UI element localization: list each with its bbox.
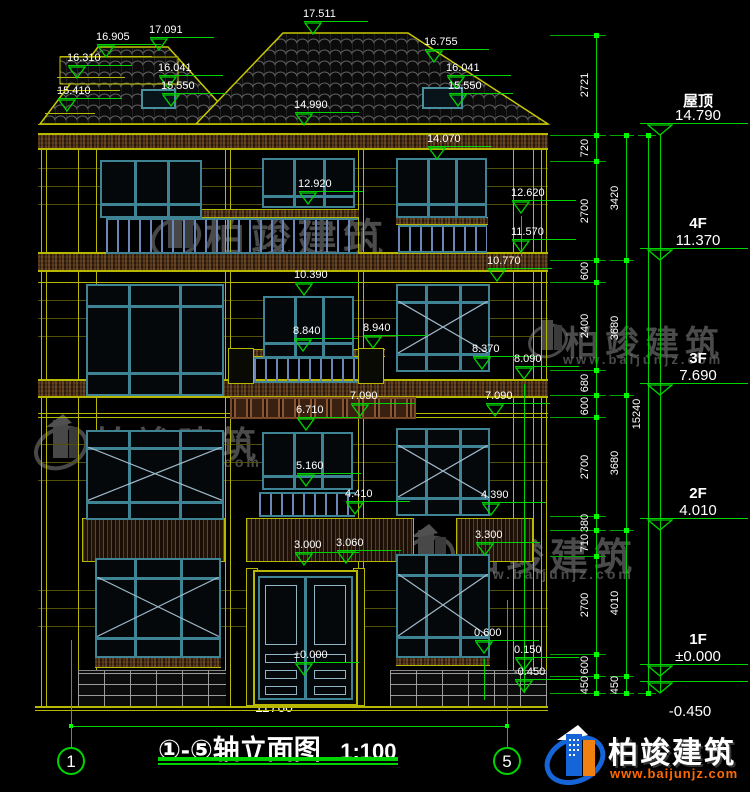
elev-label: 16.310 xyxy=(67,52,139,64)
axis-leader xyxy=(71,726,72,747)
elev-label: 15.550 xyxy=(161,80,233,92)
wall-line xyxy=(78,150,79,706)
elev-triangle-icon xyxy=(304,22,322,35)
wall-line xyxy=(38,271,548,272)
dim-node-dot xyxy=(624,691,629,696)
dim-node-dot xyxy=(594,415,599,420)
elev-label: 12.620 xyxy=(511,187,583,199)
dim-node-dot xyxy=(594,280,599,285)
floor-name: 屋顶 xyxy=(648,90,748,105)
elev-triangle-icon xyxy=(475,641,493,654)
elev-triangle-icon xyxy=(425,50,443,63)
entrance-door xyxy=(253,570,358,706)
window-mullion xyxy=(179,286,182,394)
elev-label: 4.410 xyxy=(345,488,417,500)
dim-node-dot xyxy=(624,393,629,398)
elev-triangle-icon xyxy=(150,38,168,51)
floor-elevation: 14.790 xyxy=(648,107,748,122)
dim-node-dot xyxy=(624,133,629,138)
window-mullion xyxy=(88,305,222,308)
elev-label: 14.990 xyxy=(294,99,366,111)
elev-label: 3.060 xyxy=(336,537,408,549)
brick-base xyxy=(78,670,226,706)
elev-triangle-icon xyxy=(515,367,533,380)
elev-label: 10.770 xyxy=(487,255,559,267)
elev-label: 7.090 xyxy=(350,390,422,402)
wall-line xyxy=(41,150,42,706)
elev-triangle-icon xyxy=(337,551,355,564)
window-mullion xyxy=(167,162,170,216)
floor-name: 1F xyxy=(648,631,748,646)
window-mullion xyxy=(398,203,485,206)
floor-elevation: ±0.000 xyxy=(648,648,748,663)
wall-line xyxy=(38,124,548,125)
axis-bubble: 1 xyxy=(57,747,85,775)
elev-triangle-icon xyxy=(488,269,506,282)
dim-node-dot xyxy=(624,258,629,263)
elev-triangle-icon xyxy=(364,336,382,349)
dim-tick xyxy=(610,260,634,261)
dim-node-dot xyxy=(594,159,599,164)
dim-node-dot xyxy=(594,258,599,263)
elev-label: 8.090 xyxy=(514,353,586,365)
dim-line xyxy=(158,757,398,761)
elev-label: 15.410 xyxy=(57,85,129,97)
elev-triangle-icon xyxy=(68,66,86,79)
dim-node-dot xyxy=(594,652,599,657)
dim-node-dot xyxy=(594,691,599,696)
floor-name: 4F xyxy=(648,215,748,230)
dim-value: 4010 xyxy=(609,568,621,638)
dim-line xyxy=(484,659,485,700)
door-panel xyxy=(265,585,297,644)
axis-leader xyxy=(507,726,508,747)
elev-label: 10.390 xyxy=(294,269,366,281)
door-panel xyxy=(265,654,297,663)
floor-triangle-icon xyxy=(647,123,673,135)
dim-node-dot xyxy=(594,393,599,398)
elev-label: 17.511 xyxy=(303,8,375,20)
dim-node-dot xyxy=(594,514,599,519)
dim-value: 450 xyxy=(579,650,591,720)
dim-node-dot xyxy=(624,528,629,533)
dim-tick xyxy=(610,135,634,136)
elev-triangle-icon xyxy=(297,474,315,487)
elev-triangle-icon xyxy=(482,503,500,516)
balcony-railing xyxy=(259,492,355,517)
dim-value: 450 xyxy=(609,650,621,720)
company-logo-icon xyxy=(542,722,608,788)
elev-triangle-icon xyxy=(476,543,494,556)
casement-x-mark xyxy=(88,447,222,500)
cad-canvas: 柏竣建筑 www.baijunjz.com 柏竣建筑 www.baijunjz.… xyxy=(0,0,750,792)
elev-label: 8.840 xyxy=(293,325,365,337)
floor-triangle-icon xyxy=(647,383,673,395)
dim-line xyxy=(158,763,398,765)
door-panel xyxy=(314,686,346,695)
window-mullion xyxy=(102,203,200,206)
floor-elevation: 11.370 xyxy=(648,232,748,247)
dim-node-dot xyxy=(594,674,599,679)
elev-triangle-icon xyxy=(294,339,312,352)
window-mullion xyxy=(97,637,219,640)
floor-triangle-icon xyxy=(647,681,673,693)
elev-label: 0.600 xyxy=(474,627,546,639)
dim-value: 15240 xyxy=(631,379,643,449)
elev-triangle-icon xyxy=(295,663,313,676)
elev-triangle-icon xyxy=(512,240,530,253)
window-mullion xyxy=(88,501,222,504)
window-mullion xyxy=(128,286,131,394)
elev-triangle-icon xyxy=(486,404,504,417)
wall-line xyxy=(45,113,95,114)
window-mullion xyxy=(455,160,458,216)
elev-triangle-icon xyxy=(428,147,446,160)
door-panel xyxy=(265,670,297,679)
spandrel-panel xyxy=(82,518,225,562)
balcony-railing xyxy=(106,218,358,254)
elev-triangle-icon xyxy=(58,99,76,112)
drawing-title: ①-⑤轴立面图 1:100 xyxy=(158,728,397,767)
elev-triangle-icon xyxy=(162,94,180,107)
window xyxy=(396,158,487,218)
door-panel xyxy=(314,670,346,679)
window-mullion xyxy=(293,160,296,206)
window xyxy=(86,430,224,520)
dim-value: 2721 xyxy=(579,50,591,120)
floor-triangle-icon xyxy=(647,664,673,676)
company-logo-url: www.baijunjz.com xyxy=(610,766,738,781)
elev-label: 14.070 xyxy=(427,133,499,145)
window xyxy=(86,284,224,396)
floor-elevation: 4.010 xyxy=(648,502,748,517)
dim-node-dot xyxy=(594,554,599,559)
window xyxy=(396,428,490,516)
elev-label: 16.041 xyxy=(158,62,230,74)
elev-triangle-icon xyxy=(295,113,313,126)
window xyxy=(95,558,221,658)
elev-label: 11.570 xyxy=(511,226,583,238)
wall-line xyxy=(38,149,548,150)
dim-node-dot xyxy=(594,368,599,373)
dim-value: 2700 xyxy=(579,176,591,246)
pier-post xyxy=(228,348,254,384)
dim-value: 3420 xyxy=(609,163,621,233)
door-panel xyxy=(265,686,297,695)
floor-triangle-icon xyxy=(647,518,673,530)
axis-bubble: 5 xyxy=(493,747,521,775)
door-panel xyxy=(314,585,346,644)
casement-x-mark xyxy=(97,577,219,637)
elev-triangle-icon xyxy=(297,418,315,431)
elev-label: 12.920 xyxy=(298,178,370,190)
floor-elevation: -0.450 xyxy=(640,703,740,718)
elev-triangle-icon xyxy=(295,553,313,566)
window-mullion xyxy=(88,372,222,375)
elev-triangle-icon xyxy=(515,680,533,693)
wall-line xyxy=(35,710,548,711)
pier-post xyxy=(358,348,384,384)
elev-triangle-icon xyxy=(473,357,491,370)
elev-label: 17.091 xyxy=(149,24,221,36)
wall-line xyxy=(35,706,548,708)
elev-label: 16.041 xyxy=(446,62,518,74)
dim-node-dot xyxy=(594,133,599,138)
elev-label: 8.940 xyxy=(363,322,435,334)
elev-triangle-icon xyxy=(299,192,317,205)
wall-line xyxy=(46,150,47,706)
elev-triangle-icon xyxy=(449,94,467,107)
elev-triangle-icon xyxy=(512,201,530,214)
floor-elevation: 7.690 xyxy=(648,367,748,382)
window-mullion xyxy=(427,160,430,216)
dim-node-dot xyxy=(624,674,629,679)
floor-band xyxy=(38,253,548,271)
dim-value: 600 xyxy=(579,371,591,441)
elev-triangle-icon xyxy=(346,502,364,515)
elev-label: 16.755 xyxy=(424,36,496,48)
elev-label: 6.710 xyxy=(296,404,368,416)
elev-label: 4.390 xyxy=(481,489,553,501)
dim-value: 720 xyxy=(579,113,591,183)
elev-label: ±0.000 xyxy=(294,649,366,661)
dim-chain-line xyxy=(626,135,627,693)
wall-line xyxy=(38,282,548,283)
floor-name: 2F xyxy=(648,485,748,500)
window-mullion xyxy=(134,162,137,216)
dim-tick xyxy=(610,530,634,531)
elev-label: 7.090 xyxy=(485,390,557,402)
elev-label: 5.160 xyxy=(296,460,368,472)
dim-value: 3680 xyxy=(609,293,621,363)
dim-node-dot xyxy=(594,528,599,533)
elev-label: 15.550 xyxy=(448,80,520,92)
elev-triangle-icon xyxy=(295,283,313,296)
dim-value: 3680 xyxy=(609,428,621,498)
balcony-railing xyxy=(398,225,487,253)
floor-name: 3F xyxy=(648,350,748,365)
dim-line xyxy=(71,726,508,727)
elev-label: 3.300 xyxy=(475,529,547,541)
door-panel xyxy=(304,576,306,700)
window xyxy=(100,160,202,218)
company-logo xyxy=(542,722,608,792)
railing-cap xyxy=(396,217,488,225)
floor-triangle-icon xyxy=(647,248,673,260)
dim-value: 710 xyxy=(579,508,591,578)
dim-node-dot xyxy=(594,33,599,38)
